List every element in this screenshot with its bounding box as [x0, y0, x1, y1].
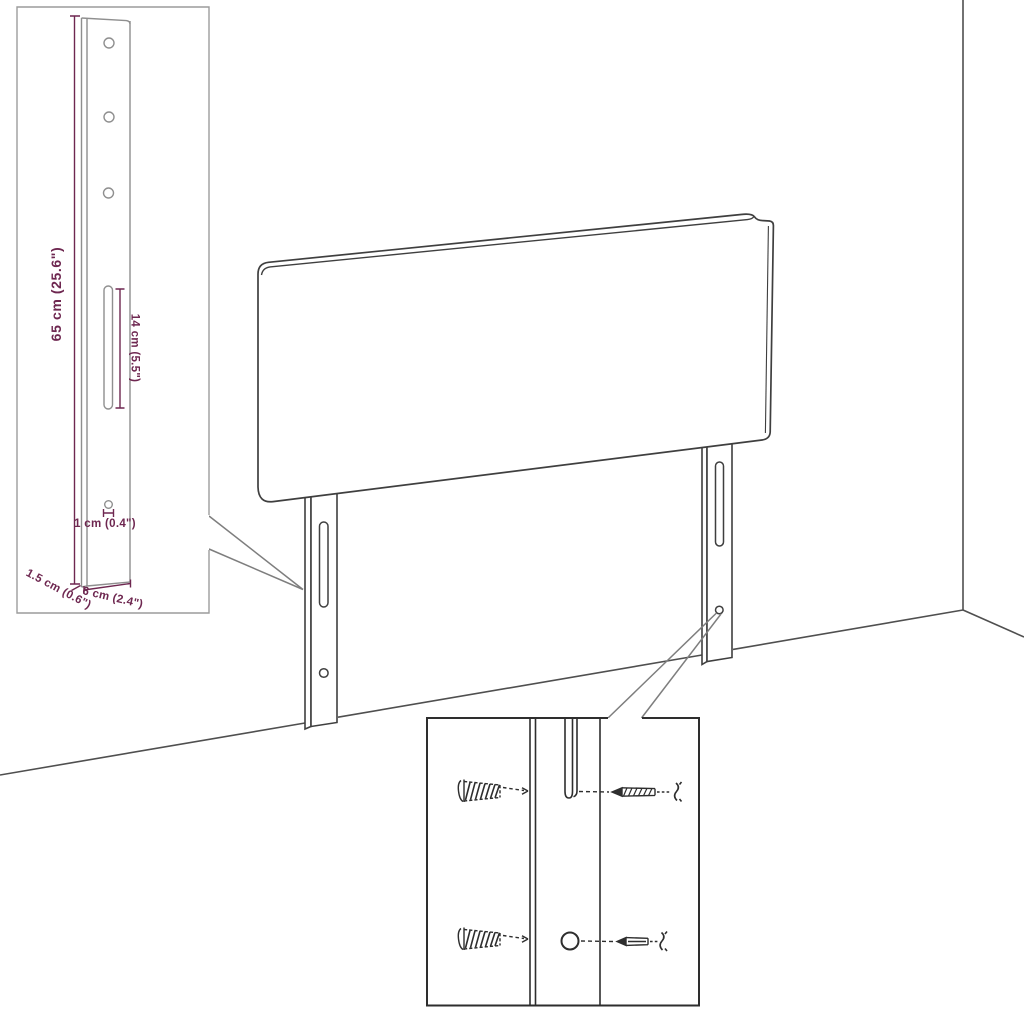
- screw-inset-border: [427, 718, 699, 1006]
- headboard-diagram-svg: 65 cm (25.6") 14 cm (5.5") 1 cm (0.4") 6…: [0, 0, 1024, 1024]
- screw-inset-callout-left: [608, 613, 717, 718]
- right-leg-slot: [716, 462, 724, 546]
- panel-outline: [258, 214, 773, 502]
- label-slot-14cm: 14 cm (5.5"): [129, 314, 141, 383]
- left-leg-side-face: [305, 480, 311, 729]
- bracket-small-hole: [105, 501, 113, 509]
- left-leg-slot: [320, 522, 329, 607]
- callout-lines: [209, 516, 721, 718]
- right-leg-hole: [716, 606, 724, 614]
- label-height-65cm: 65 cm (25.6"): [48, 247, 64, 342]
- headboard-panel: [258, 214, 773, 502]
- bracket-slot: [104, 286, 113, 409]
- bracket-hole-bottom: [104, 188, 114, 198]
- right-leg: [702, 430, 732, 665]
- label-hole-1cm: 1 cm (0.4"): [74, 518, 136, 530]
- bracket-detail-inset: 65 cm (25.6") 14 cm (5.5") 1 cm (0.4") 6…: [17, 7, 209, 613]
- screw-inset-callout-right: [642, 614, 722, 718]
- floor-line-right: [963, 610, 1024, 637]
- bracket-inset-callout-upper: [209, 516, 303, 590]
- bracket-inset-callout-lower: [209, 549, 303, 590]
- left-leg-hole: [320, 669, 329, 678]
- bracket-hole-top: [104, 38, 114, 48]
- left-leg: [305, 480, 337, 729]
- screw-detail-inset: [427, 718, 699, 1006]
- product-assembly-diagram: 65 cm (25.6") 14 cm (5.5") 1 cm (0.4") 6…: [0, 0, 1024, 1024]
- bracket-hole-middle: [104, 112, 114, 122]
